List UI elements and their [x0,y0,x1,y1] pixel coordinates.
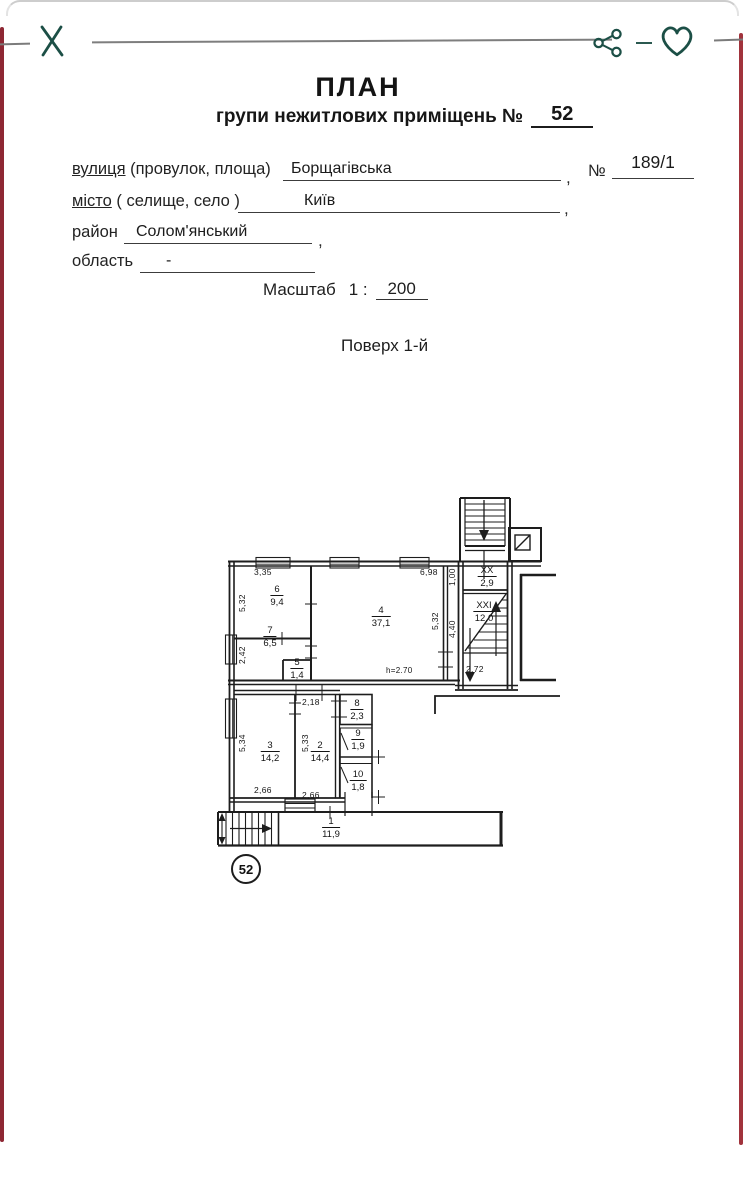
scan-page-edge [6,0,739,16]
scan-red-edge-left [0,27,4,1142]
city-comma: , [564,199,569,219]
dimension-label: 2,72 [466,664,484,674]
dimension-label: 2,66 [302,790,320,800]
scale-ratio-prefix: 1 : [349,280,368,300]
scale-row: Масштаб 1 : 200 [263,279,428,300]
house-number-label: № [588,162,606,181]
dimension-label: 5,32 [237,594,247,612]
street-field-line: Борщагівська [283,150,561,181]
close-icon[interactable] [39,24,65,58]
dimension-label: 5,34 [237,734,247,752]
room-label-4: 437,1 [372,606,391,629]
dimension-label: 6,98 [420,567,438,577]
dimension-label: 5,33 [300,734,310,752]
scale-label: Масштаб [263,280,336,300]
dimension-label: 2,18 [302,697,320,707]
house-number-value: 189/1 [612,152,694,173]
region-field-label: область [72,252,133,271]
region-value: - [166,252,171,270]
street-comma: , [566,168,571,188]
dimension-label: 1,00 [447,568,457,586]
district-field-label: район [72,223,118,242]
dimension-label: 2,66 [254,785,272,795]
street-value: Борщагівська [291,160,392,178]
room-label-7: 76,5 [263,626,276,649]
room-label-9: 91,9 [351,729,364,752]
toolbar-separator-dash [636,42,652,44]
scale-ratio-value: 200 [376,279,428,300]
room-label-3: 314,2 [261,741,280,764]
floor-label: Поверх 1-й [341,336,428,356]
city-field-label: місто ( селище, село ) [72,192,240,211]
room-label-xxi: XXI12,0 [473,601,494,624]
region-field-line: - [140,242,315,273]
city-value: Київ [304,192,335,210]
room-label-5: 51,4 [290,658,303,681]
district-comma: , [318,231,323,251]
share-icon[interactable] [592,27,624,59]
toolbar-line-left [0,43,30,46]
favorite-heart-icon[interactable] [656,23,698,59]
toolbar-divider-line [92,39,612,44]
city-field-line: Київ [238,182,560,213]
room-label-xx: XX2,9 [478,566,497,589]
image-viewer-page: ПЛАН групи нежитлових приміщень № 52 вул… [0,0,743,1200]
district-value: Солом'янський [136,223,247,241]
premises-group-number: 52 [531,103,593,128]
district-field-line: Солом'янський [124,213,312,244]
document-subtitle: групи нежитлових приміщень № 52 [216,103,593,128]
dimension-label: 2,42 [237,646,247,664]
floorplan-drawing [210,485,565,890]
street-field-label: вулиця (провулок, площа) [72,160,271,179]
room-label-6: 69,4 [270,585,283,608]
document-title: ПЛАН [0,72,716,103]
ceiling-height-label: h=2.70 [386,666,413,675]
dimension-label: 3,35 [254,567,272,577]
room-label-1: 111,9 [322,817,340,840]
dimension-label: 4,40 [447,620,457,638]
room-label-8: 82,3 [350,699,363,722]
scan-red-edge-right [739,33,743,1145]
house-number-line: 189/1 [612,146,694,179]
room-label-10: 101,8 [350,770,367,793]
dimension-label: 5,32 [430,612,440,630]
room-label-2: 214,4 [311,741,330,764]
subtitle-text: групи нежитлових приміщень № [216,106,523,128]
unit-number-badge: 52 [239,862,253,877]
